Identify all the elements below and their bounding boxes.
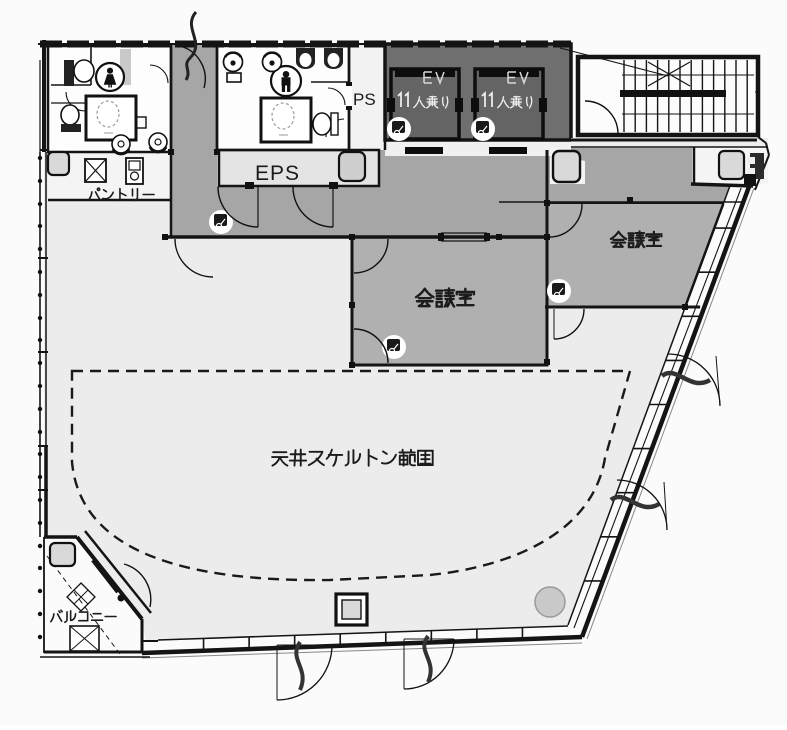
svg-text:EPS: EPS [255, 162, 300, 185]
svg-text:PS: PS [353, 90, 376, 109]
